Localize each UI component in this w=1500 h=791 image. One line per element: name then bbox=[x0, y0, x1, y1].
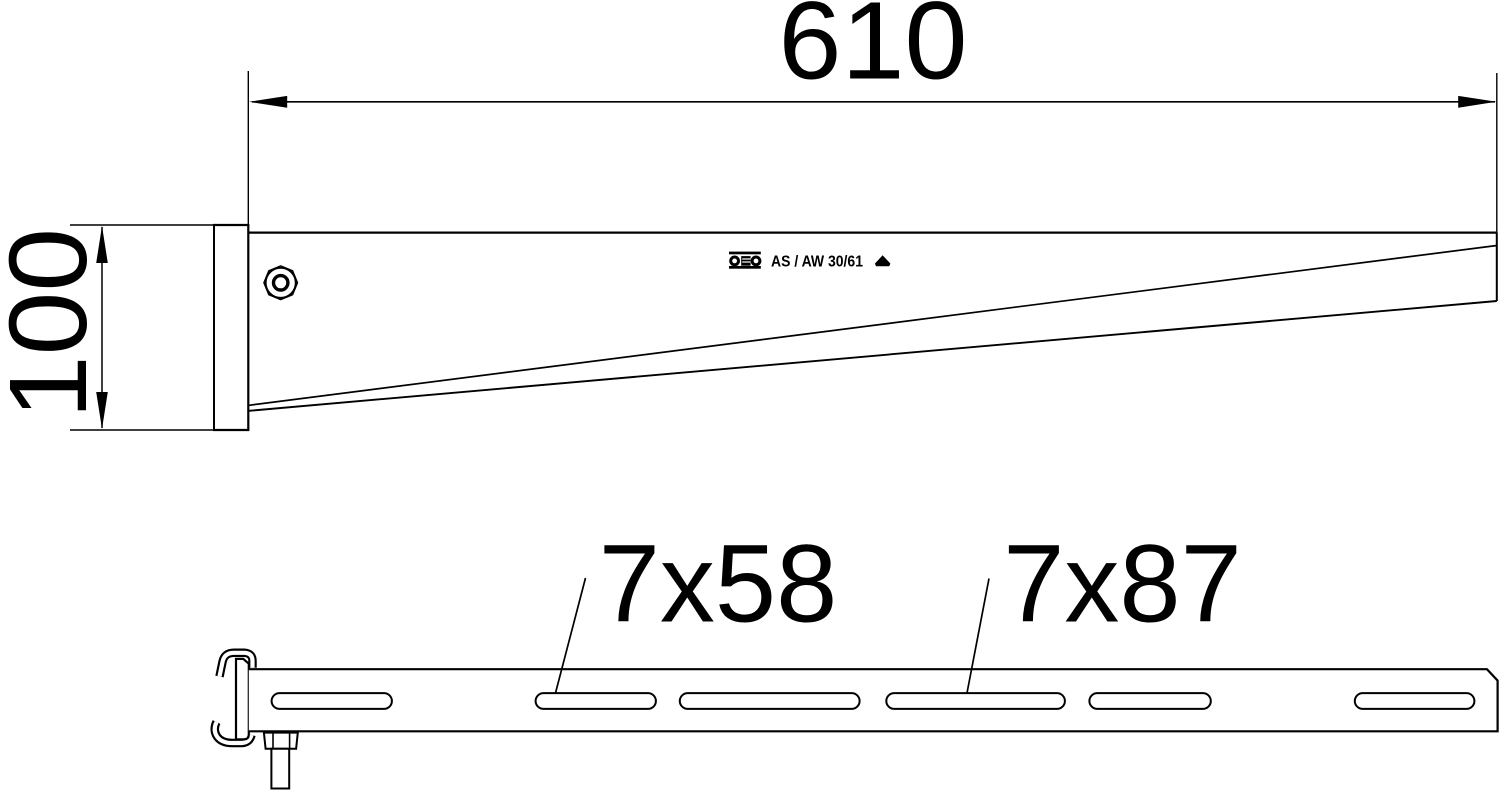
svg-text:7x87: 7x87 bbox=[1003, 523, 1242, 646]
svg-text:AS / AW 30/61: AS / AW 30/61 bbox=[771, 254, 863, 271]
svg-text:7x58: 7x58 bbox=[599, 523, 838, 646]
svg-text:610: 610 bbox=[779, 0, 968, 103]
svg-text:100: 100 bbox=[0, 228, 110, 419]
